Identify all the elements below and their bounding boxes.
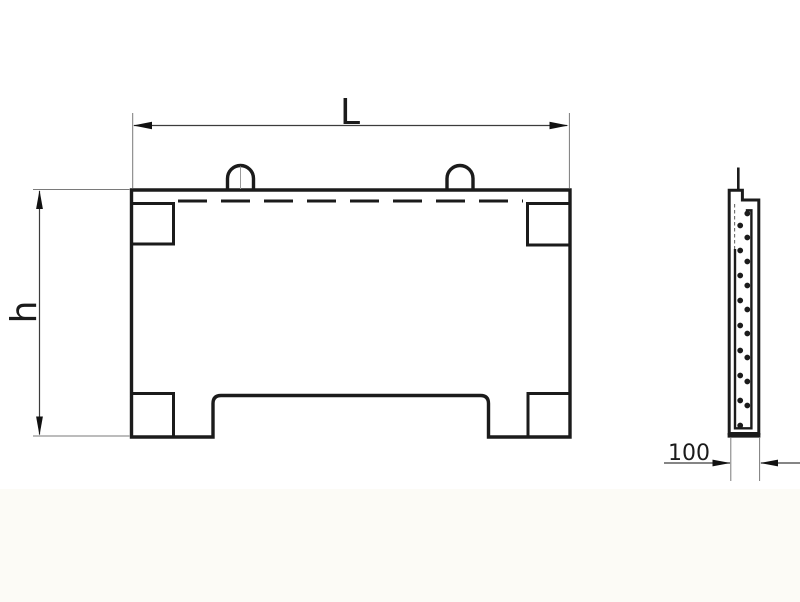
rebar-dot xyxy=(737,348,743,354)
rebar-dot xyxy=(737,298,743,304)
rebar-dot xyxy=(744,307,750,313)
rebar-dot xyxy=(737,273,743,279)
rebar-dot xyxy=(744,379,750,385)
length-label: L xyxy=(340,92,360,133)
rebar-dot xyxy=(737,323,743,329)
drawing-canvas: L h xyxy=(0,0,800,602)
rebar-dot xyxy=(737,398,743,404)
section-outline xyxy=(729,190,759,433)
technical-drawing: L h xyxy=(0,0,800,602)
rebar-dot xyxy=(737,223,743,229)
dimension-thickness: 100 xyxy=(664,438,800,481)
height-label: h xyxy=(4,301,45,324)
rebar-dot xyxy=(737,373,743,379)
rebar-dot xyxy=(744,235,750,241)
arrowhead-right-icon xyxy=(713,460,731,467)
front-view xyxy=(132,166,571,438)
arrowhead-left-icon xyxy=(760,460,778,467)
dimension-height: h xyxy=(4,190,130,437)
rebar-dot xyxy=(744,259,750,265)
arrowhead-left-icon xyxy=(133,122,152,129)
panel-outline xyxy=(132,190,571,437)
rebar-dot xyxy=(737,248,743,254)
dimension-length: L xyxy=(133,92,570,188)
arrowhead-up-icon xyxy=(36,190,43,209)
rebar-dot xyxy=(744,331,750,337)
rebar-dot xyxy=(744,211,750,217)
arrowhead-down-icon xyxy=(36,417,43,436)
thickness-label: 100 xyxy=(668,441,710,466)
side-view xyxy=(728,168,761,436)
rebar-dot xyxy=(744,283,750,289)
rebar-dot xyxy=(744,355,750,361)
rebar-dot xyxy=(737,423,743,429)
rebar-dot xyxy=(744,403,750,409)
arrowhead-right-icon xyxy=(550,122,569,129)
lifting-loop-right xyxy=(447,166,473,190)
background-band xyxy=(0,489,800,602)
